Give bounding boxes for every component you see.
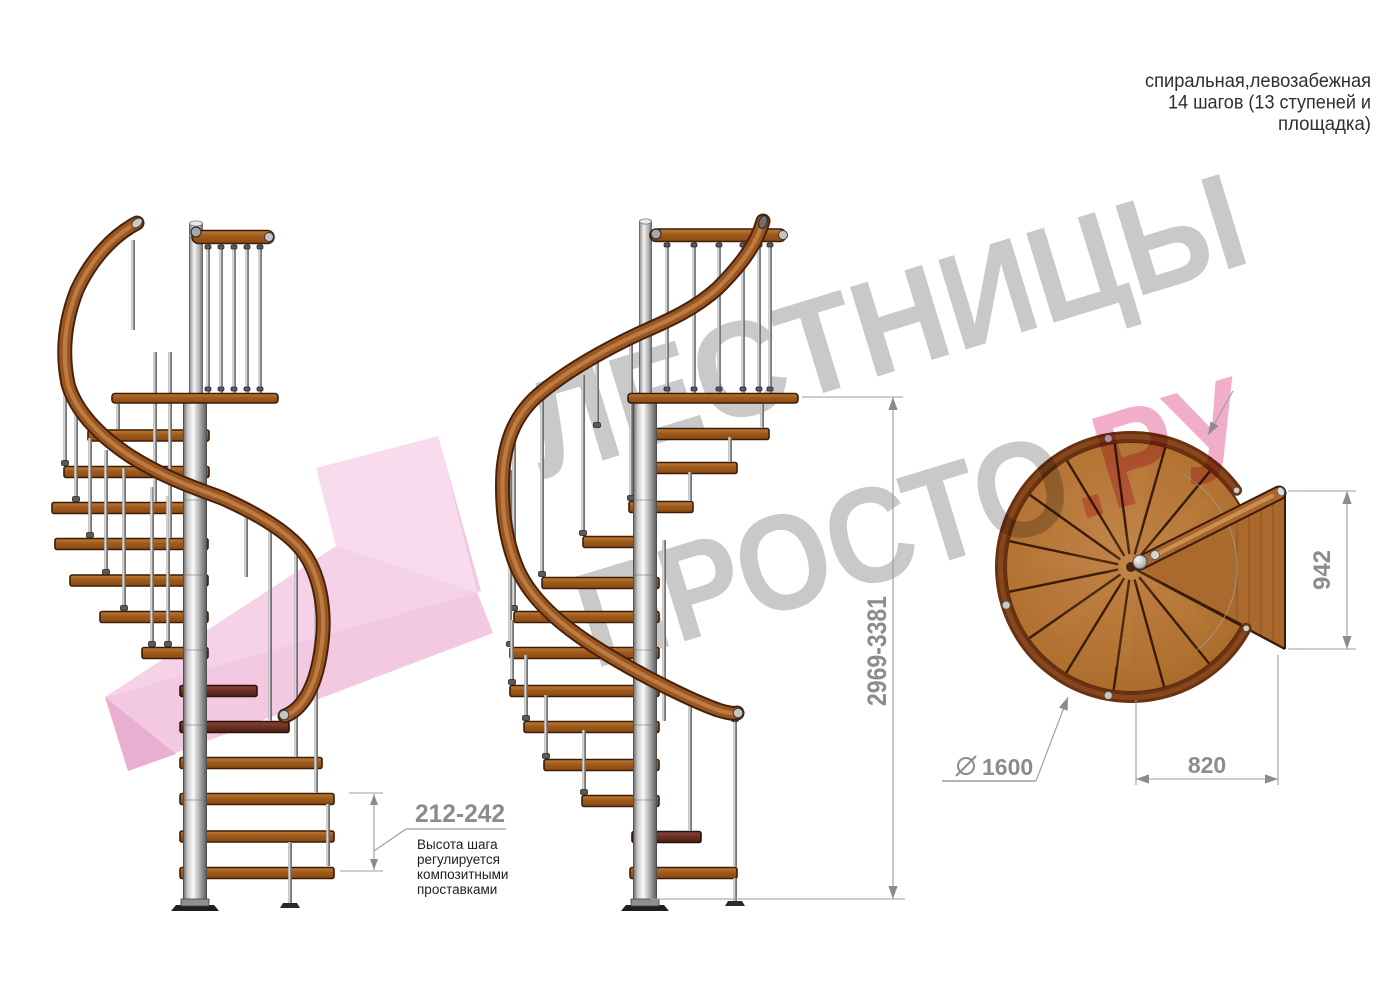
svg-text:820: 820 [1188,752,1226,778]
svg-text:спиральная,левозабежная: спиральная,левозабежная [1145,70,1371,92]
svg-text:Высота шага: Высота шага [417,837,498,852]
svg-text:регулируется: регулируется [417,852,500,867]
svg-text:1600: 1600 [982,754,1033,780]
svg-text:212-242: 212-242 [415,800,505,828]
svg-text:942: 942 [1309,550,1336,590]
svg-text:площадка): площадка) [1278,113,1371,135]
svg-text:композитными: композитными [417,867,508,882]
svg-text:проставками: проставками [417,882,497,897]
svg-text:14 шагов (13 ступеней и: 14 шагов (13 ступеней и [1168,92,1371,114]
svg-text:2969-3381: 2969-3381 [862,596,892,706]
